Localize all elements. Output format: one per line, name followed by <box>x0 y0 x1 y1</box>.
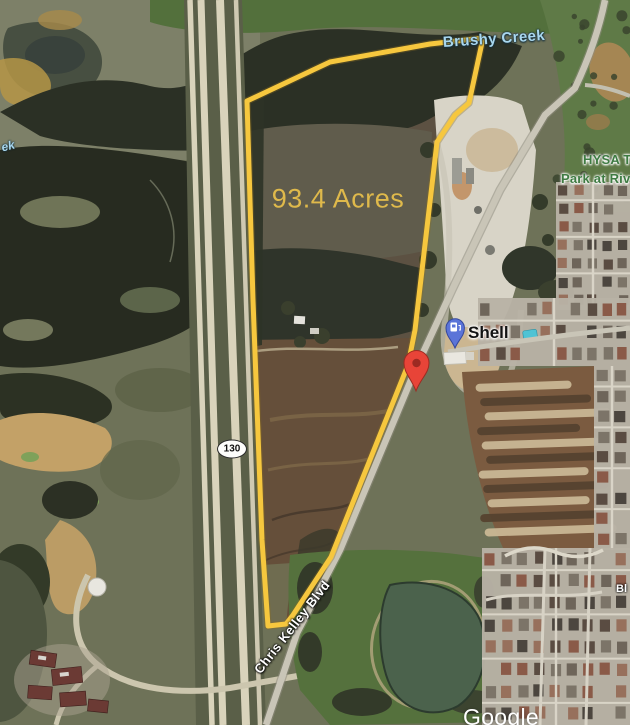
satellite-imagery <box>0 0 630 725</box>
highway-130-shield: 130 <box>217 440 247 459</box>
residential-area <box>482 548 630 725</box>
residential-area <box>556 182 630 310</box>
residential-area <box>594 366 630 550</box>
satellite-map-viewport[interactable]: Brushy Creek ek 93.4 Acres HYSA T Park a… <box>0 0 630 725</box>
gas-station-canopy <box>444 351 467 364</box>
